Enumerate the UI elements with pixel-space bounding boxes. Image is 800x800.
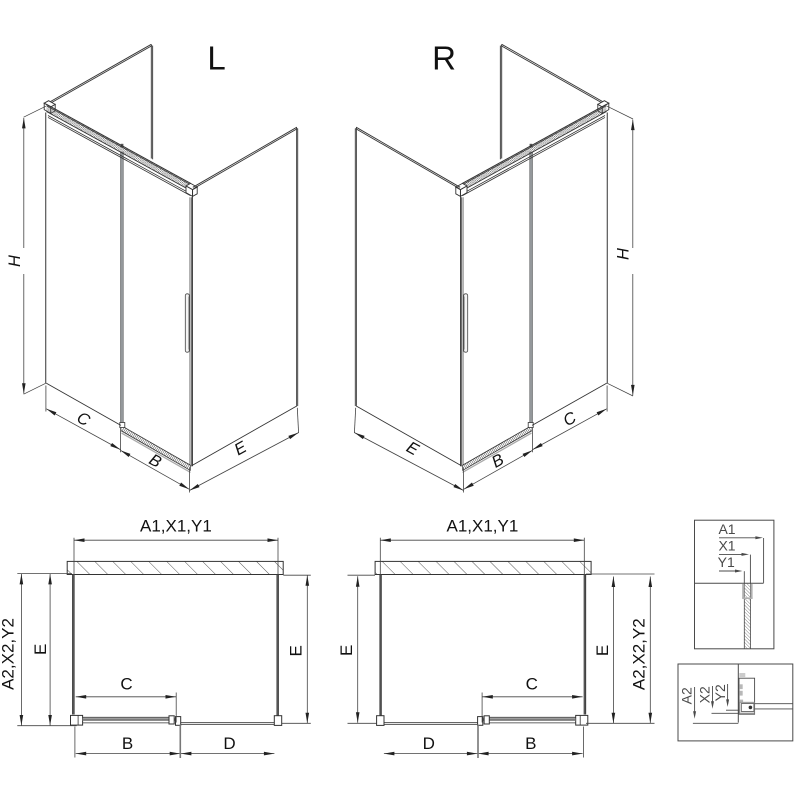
svg-text:C: C — [526, 674, 538, 693]
svg-text:A1,X1,Y1: A1,X1,Y1 — [140, 516, 212, 535]
svg-text:A2,X2,Y2: A2,X2,Y2 — [0, 618, 17, 690]
svg-text:Y1: Y1 — [718, 554, 735, 570]
svg-text:X1: X1 — [718, 538, 735, 554]
svg-text:E: E — [337, 645, 356, 656]
svg-text:A2: A2 — [679, 687, 695, 704]
svg-text:B: B — [525, 734, 536, 753]
svg-text:D: D — [423, 734, 435, 753]
svg-text:C: C — [120, 674, 132, 693]
svg-text:E: E — [31, 644, 50, 655]
svg-text:H: H — [615, 248, 633, 260]
svg-text:D: D — [223, 734, 235, 753]
svg-text:E: E — [287, 645, 306, 656]
svg-text:H: H — [6, 255, 24, 267]
svg-text:R: R — [432, 40, 456, 77]
svg-text:A1,X1,Y1: A1,X1,Y1 — [446, 516, 518, 535]
svg-text:A2,X2,Y2: A2,X2,Y2 — [629, 618, 648, 690]
svg-text:E: E — [593, 645, 612, 656]
svg-text:L: L — [207, 40, 225, 77]
svg-text:X2: X2 — [697, 686, 713, 703]
svg-text:B: B — [122, 734, 133, 753]
svg-text:A1: A1 — [718, 521, 735, 537]
svg-text:Y2: Y2 — [712, 684, 728, 701]
